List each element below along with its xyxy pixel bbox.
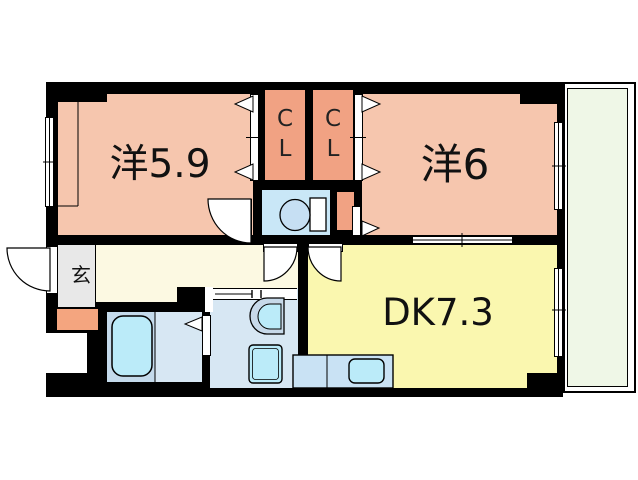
window-west — [45, 117, 54, 207]
label-entrance: 玄 — [69, 260, 93, 286]
closet-left-letter-bottom: L — [279, 135, 292, 165]
floor-plan: 洋5.9 洋6 DK7.3 玄 C L C L — [0, 0, 638, 480]
closet-right-door — [354, 94, 363, 181]
closet-left-door — [250, 94, 259, 181]
pillar-bottom-right — [527, 373, 563, 390]
pillar-top-left — [46, 82, 107, 102]
closet-right-letter-bottom: L — [327, 135, 340, 165]
toilet-room — [262, 190, 330, 235]
entry-porch — [57, 309, 98, 330]
bath-door-track — [202, 315, 211, 356]
toilet-door-leaf — [263, 243, 298, 252]
bedroom1-door-leaf — [243, 199, 252, 236]
entrance-door-leaf — [46, 246, 58, 294]
washroom-door-slot — [205, 287, 213, 312]
bedroom2-door-track — [352, 206, 361, 236]
label-western-room-6: 洋6 — [395, 138, 515, 184]
genkan-hall-divider — [95, 245, 96, 302]
window-east-bedroom — [554, 122, 563, 210]
closet-right-letter-top: C — [325, 105, 341, 135]
window-east-dk — [554, 268, 563, 357]
washroom-sliding-door — [213, 288, 297, 300]
label-closet-left: C L — [265, 104, 305, 166]
label-closet-right: C L — [313, 104, 353, 166]
label-dining-kitchen: DK7.3 — [368, 292, 508, 332]
label-western-room-5-9: 洋5.9 — [100, 140, 220, 182]
hall-wall-chunk — [177, 287, 207, 302]
entrance-door-swing-arc — [7, 248, 50, 291]
balcony-floor — [567, 88, 628, 387]
exterior-notch — [46, 333, 87, 373]
window-between-yo6-dk — [412, 236, 513, 244]
pillar-top-right — [520, 82, 563, 104]
bathroom — [107, 312, 202, 382]
closet-left-letter-top: C — [277, 105, 293, 135]
dk-door-leaf — [308, 243, 343, 252]
washroom — [210, 288, 298, 388]
